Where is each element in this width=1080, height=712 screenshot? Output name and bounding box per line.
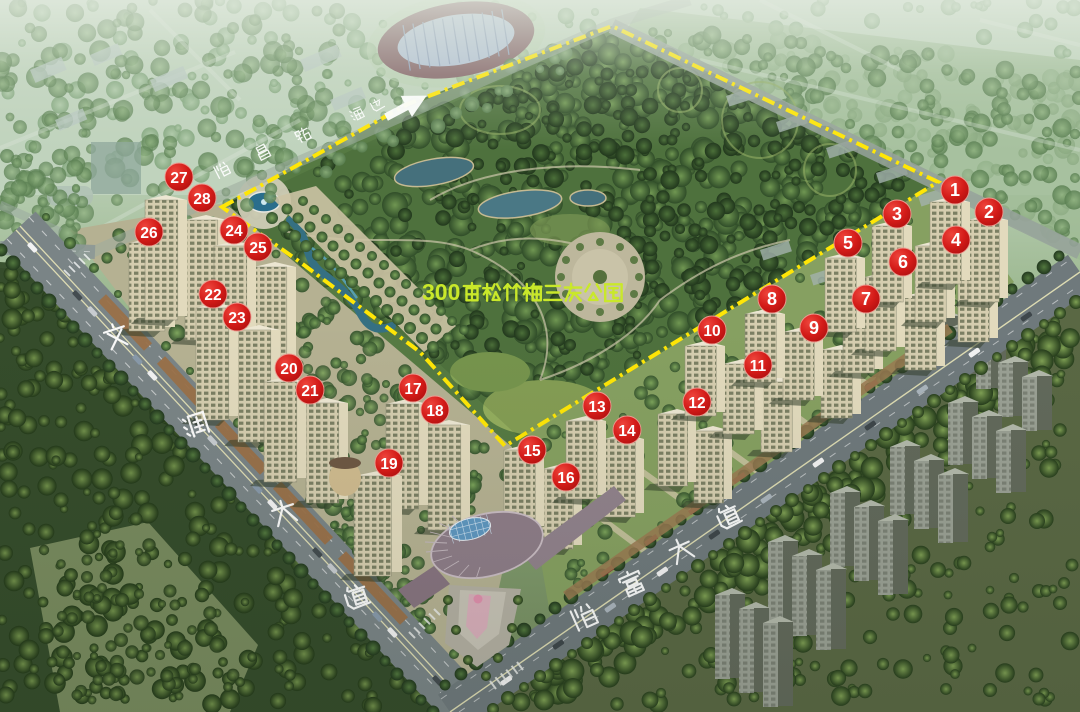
svg-text:24: 24 xyxy=(225,223,243,240)
svg-text:15: 15 xyxy=(523,443,541,460)
svg-text:14: 14 xyxy=(618,423,636,440)
svg-text:10: 10 xyxy=(703,323,720,340)
svg-text:19: 19 xyxy=(380,456,398,473)
svg-text:26: 26 xyxy=(140,225,158,242)
svg-text:2: 2 xyxy=(984,202,994,222)
svg-text:17: 17 xyxy=(404,381,421,398)
svg-text:23: 23 xyxy=(228,310,246,327)
svg-text:5: 5 xyxy=(843,233,853,253)
svg-text:8: 8 xyxy=(767,289,777,309)
svg-text:11: 11 xyxy=(750,358,767,375)
svg-text:3: 3 xyxy=(892,204,902,224)
svg-text:18: 18 xyxy=(426,403,444,420)
svg-text:16: 16 xyxy=(557,470,575,487)
svg-text:6: 6 xyxy=(898,252,908,272)
svg-text:27: 27 xyxy=(170,170,187,187)
svg-text:13: 13 xyxy=(588,399,606,416)
svg-text:12: 12 xyxy=(688,395,705,412)
svg-text:22: 22 xyxy=(204,287,221,304)
svg-text:28: 28 xyxy=(193,191,211,208)
svg-text:9: 9 xyxy=(809,318,819,338)
svg-text:25: 25 xyxy=(249,240,267,257)
svg-text:20: 20 xyxy=(280,361,297,378)
svg-text:7: 7 xyxy=(861,289,871,309)
svg-text:1: 1 xyxy=(950,180,960,200)
svg-text:21: 21 xyxy=(301,383,319,400)
svg-text:4: 4 xyxy=(951,230,961,250)
